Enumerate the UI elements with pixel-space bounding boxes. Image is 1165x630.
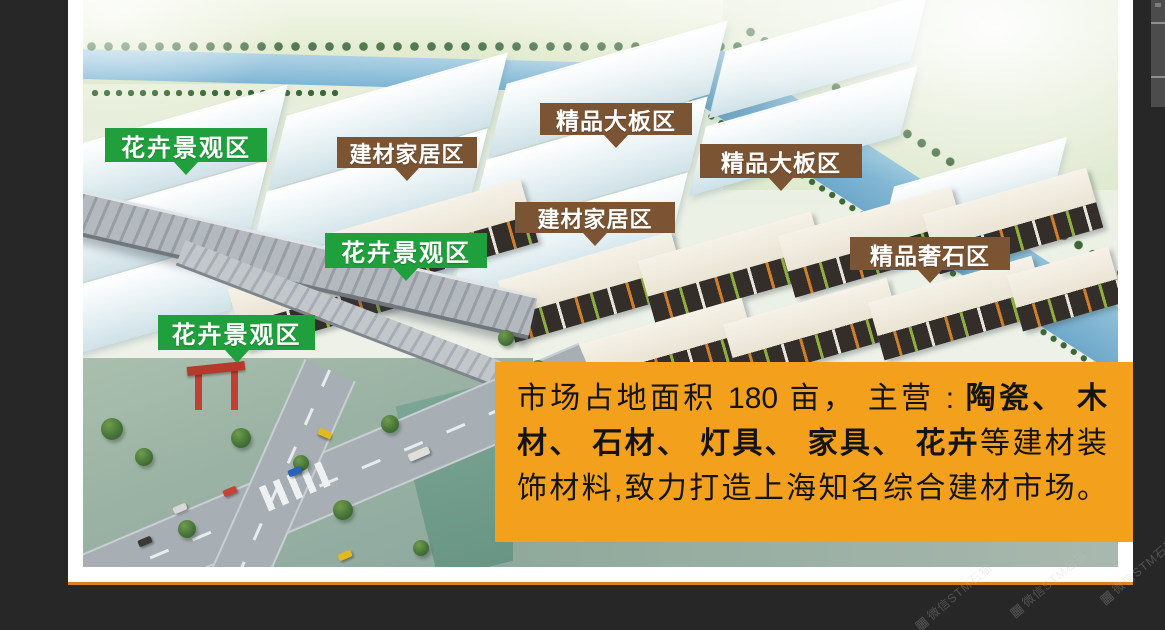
market-description-box: 市场占地面积 180 亩， 主营 : 陶瓷、 木 材、 石材、 灯具、 家具、 … xyxy=(495,362,1133,542)
zone-label-slab-2: 精品大板区 xyxy=(700,144,862,178)
description-text: 等建材装 xyxy=(980,427,1107,460)
description-line-2: 材、 石材、 灯具、 家具、 花卉等建材装 xyxy=(517,421,1107,466)
description-line-3: 饰材料,致力打造上海知名综合建材市场。 xyxy=(517,466,1107,511)
slide-card: 花卉景观区 建材家居区 精品大板区 精品大板区 建材家居区 花卉景观区 精品奢石… xyxy=(68,0,1133,585)
zone-label-home-materials-2: 建材家居区 xyxy=(515,202,675,233)
description-text: 饰材料,致力打造上海知名综合建材市场。 xyxy=(517,472,1107,505)
zone-label-text: 花卉景观区 xyxy=(341,233,471,268)
description-text: 市场占地面积 180 亩， 主营 : xyxy=(517,382,966,415)
zone-label-text: 精品奢石区 xyxy=(870,237,990,271)
zone-label-flower-garden-2: 花卉景观区 xyxy=(325,233,487,268)
zone-label-slab-1: 精品大板区 xyxy=(540,103,692,135)
description-text-bold: 材、 石材、 灯具、 家具、 花卉 xyxy=(517,427,980,460)
zone-label-text: 花卉景观区 xyxy=(121,128,251,163)
zone-label-text: 建材家居区 xyxy=(537,202,652,234)
zone-label-luxury-stone: 精品奢石区 xyxy=(850,237,1010,270)
panel-divider xyxy=(1151,76,1165,78)
app-dark-workspace: 花卉景观区 建材家居区 精品大板区 精品大板区 建材家居区 花卉景观区 精品奢石… xyxy=(0,0,1165,630)
zone-label-flower-garden-3: 花卉景观区 xyxy=(158,315,315,350)
description-line-1: 市场占地面积 180 亩， 主营 : 陶瓷、 木 xyxy=(517,376,1107,421)
zone-label-home-materials-1: 建材家居区 xyxy=(337,137,477,168)
zone-label-flower-garden-1: 花卉景观区 xyxy=(105,128,267,162)
panel-edge-glyph xyxy=(1155,3,1161,7)
zone-label-text: 精品大板区 xyxy=(556,102,676,136)
zone-label-text: 建材家居区 xyxy=(349,137,464,169)
zone-label-text: 花卉景观区 xyxy=(172,315,302,350)
description-text-bold: 陶瓷、 木 xyxy=(966,382,1107,415)
zone-label-text: 精品大板区 xyxy=(721,144,841,178)
panel-divider xyxy=(1151,22,1165,24)
right-panel-edge[interactable] xyxy=(1151,0,1165,107)
